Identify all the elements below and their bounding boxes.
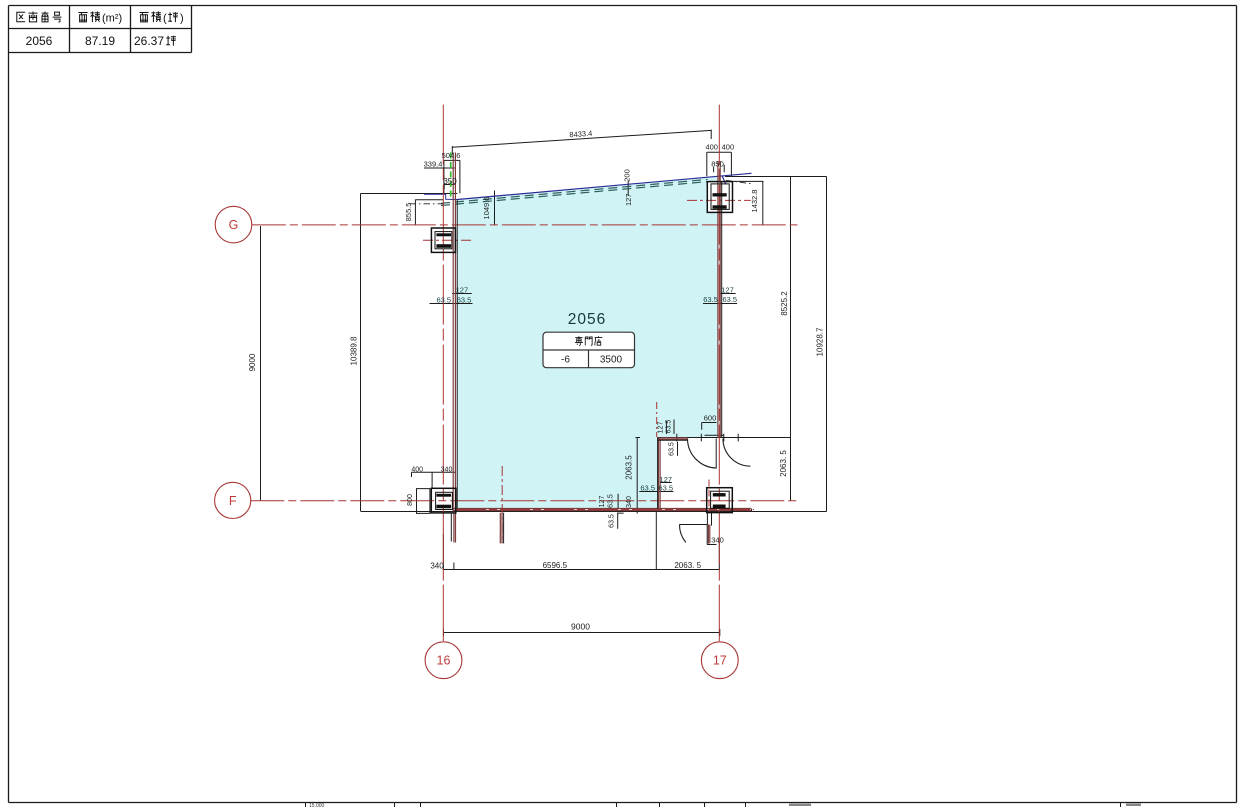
svg-text:127: 127 <box>456 285 469 294</box>
svg-text:(: ( <box>163 13 167 25</box>
svg-text:340: 340 <box>430 561 444 570</box>
svg-text:): ) <box>180 13 184 25</box>
svg-text:2063. 5: 2063. 5 <box>779 450 788 477</box>
svg-text:(m²): (m²) <box>102 13 122 25</box>
svg-text:127: 127 <box>599 496 606 508</box>
svg-text:200: 200 <box>623 169 632 182</box>
svg-text:63.5: 63.5 <box>722 295 737 304</box>
svg-text:340: 340 <box>626 496 633 508</box>
svg-text:8433.4: 8433.4 <box>569 129 592 139</box>
svg-text:10389.8: 10389.8 <box>350 336 359 365</box>
svg-text:G: G <box>229 218 239 232</box>
svg-text:1049.6: 1049.6 <box>482 197 491 220</box>
svg-text:2063. 5: 2063. 5 <box>674 561 701 570</box>
svg-text:400: 400 <box>411 466 423 473</box>
svg-text:9000: 9000 <box>248 353 257 371</box>
svg-text:400: 400 <box>705 143 718 152</box>
svg-text:2056: 2056 <box>568 311 606 328</box>
svg-text:63.5: 63.5 <box>703 295 718 304</box>
svg-text:63.5: 63.5 <box>609 514 616 528</box>
svg-text:6596.5: 6596.5 <box>543 561 568 570</box>
svg-text:339.4: 339.4 <box>424 160 443 169</box>
svg-text:340: 340 <box>441 466 453 473</box>
svg-text:9000: 9000 <box>571 622 590 632</box>
svg-text:F: F <box>229 494 237 508</box>
svg-text:2056: 2056 <box>26 34 53 48</box>
svg-text:3500: 3500 <box>600 354 623 365</box>
svg-text:10928.7: 10928.7 <box>816 327 825 356</box>
svg-text:63.5: 63.5 <box>457 295 472 304</box>
svg-text:17: 17 <box>713 654 727 668</box>
svg-text:504.6: 504.6 <box>442 151 461 160</box>
svg-text:855.5: 855.5 <box>404 203 413 222</box>
svg-text:127: 127 <box>624 194 633 207</box>
svg-text:850: 850 <box>711 160 724 169</box>
svg-text:15,000: 15,000 <box>309 803 325 807</box>
svg-text:63.5: 63.5 <box>608 494 615 508</box>
svg-text:87.19: 87.19 <box>85 34 115 48</box>
svg-text:2063.5: 2063.5 <box>625 455 634 480</box>
svg-text:63.5: 63.5 <box>658 483 673 492</box>
svg-text:16: 16 <box>437 654 451 668</box>
svg-text:63.5: 63.5 <box>436 295 451 304</box>
svg-text:-6: -6 <box>561 354 570 365</box>
svg-text:400: 400 <box>722 143 735 152</box>
svg-text:800: 800 <box>407 494 414 506</box>
svg-text:63.5: 63.5 <box>640 483 655 492</box>
svg-text:63.5: 63.5 <box>669 442 676 456</box>
svg-text:8525.2: 8525.2 <box>780 291 789 316</box>
svg-text:600: 600 <box>704 413 717 422</box>
svg-text:26.37: 26.37 <box>134 34 164 48</box>
svg-text:63.5: 63.5 <box>665 420 672 434</box>
svg-text:1432.8: 1432.8 <box>750 190 759 213</box>
svg-text:127: 127 <box>721 285 734 294</box>
svg-text:127: 127 <box>657 422 664 434</box>
svg-text:350: 350 <box>443 177 457 186</box>
svg-text:340: 340 <box>711 536 724 545</box>
